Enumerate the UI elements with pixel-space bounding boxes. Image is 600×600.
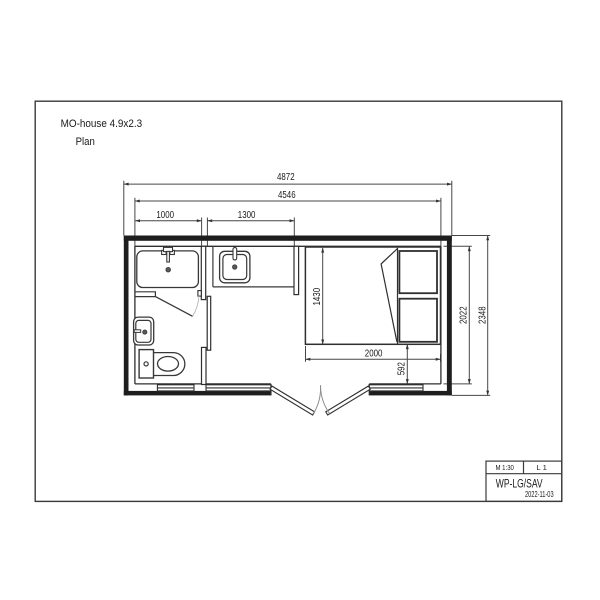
svg-text:2348: 2348 [478,306,489,324]
svg-text:4872: 4872 [277,172,295,183]
svg-text:L 1: L 1 [537,463,547,472]
svg-text:WP-LG/SAV: WP-LG/SAV [496,476,543,490]
svg-text:592: 592 [397,362,408,376]
svg-text:2000: 2000 [365,349,383,360]
svg-text:1000: 1000 [156,210,174,221]
svg-text:M 1:30: M 1:30 [496,463,514,472]
svg-text:2022: 2022 [459,306,470,324]
svg-text:MO-house 4.9x2.3: MO-house 4.9x2.3 [61,118,143,130]
svg-text:4546: 4546 [278,190,296,201]
svg-text:1430: 1430 [312,288,323,306]
svg-text:Plan: Plan [76,136,95,148]
svg-text:1300: 1300 [238,210,256,221]
svg-text:2022-11-03: 2022-11-03 [525,490,554,499]
